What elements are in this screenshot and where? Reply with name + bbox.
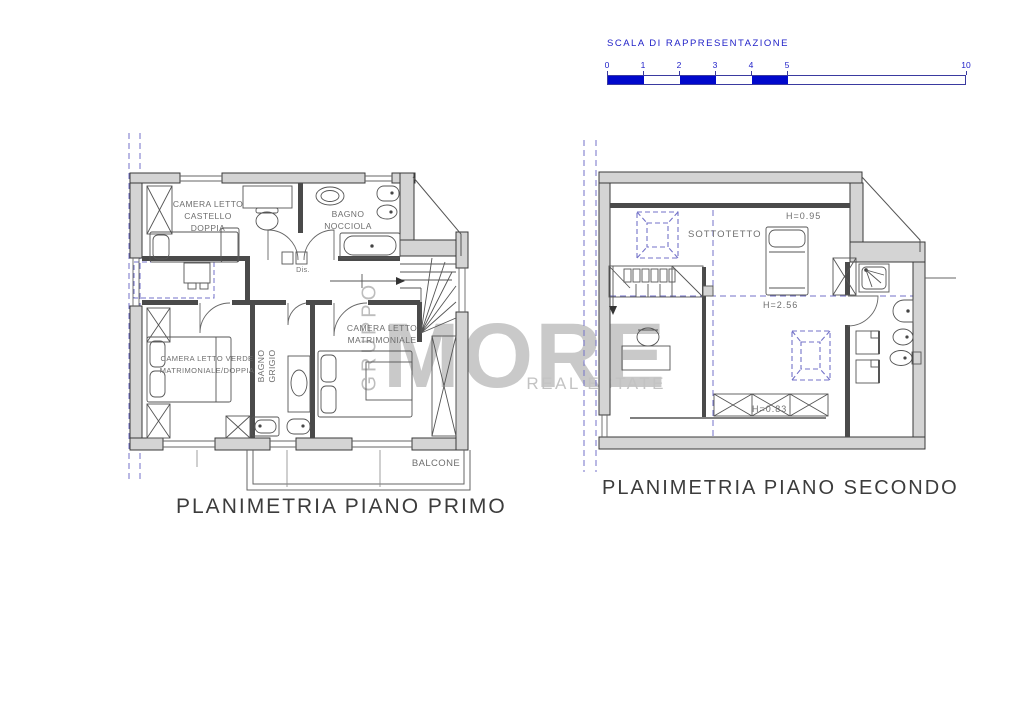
room-label-castello: CASTELLO <box>184 211 232 221</box>
room-label-grigio: BAGNO <box>256 350 266 383</box>
height-label: H=0.83 <box>752 404 787 414</box>
bathtub-icon <box>340 233 400 258</box>
sink-icon <box>316 187 344 205</box>
desk-icon <box>243 186 292 208</box>
second-floor-title: PLANIMETRIA PIANO SECONDO <box>602 477 959 500</box>
scale-tick-label: 4 <box>749 60 754 70</box>
door-swings <box>200 230 367 336</box>
bidet-icon <box>377 205 397 219</box>
scale-tick-label: 2 <box>677 60 682 70</box>
washbasin-icon <box>893 300 913 322</box>
first-floor-title: PLANIMETRIA PIANO PRIMO <box>176 495 507 519</box>
double-bed-icon <box>318 351 412 417</box>
chair-icon <box>637 328 659 346</box>
scale-bar-rule <box>607 75 966 85</box>
single-bed-icon <box>766 227 808 295</box>
scale-tick-label: 10 <box>961 60 970 70</box>
room-label-grigio: GRIGIO <box>267 349 277 382</box>
bidet-icon <box>893 329 913 345</box>
stairs-icon <box>330 258 456 333</box>
room-label-verde: MATRIMONIALE/DOPPIA <box>160 366 255 375</box>
chamfer-edge <box>862 177 920 252</box>
balcony-outline <box>197 450 470 490</box>
wardrobe-icon <box>147 186 172 234</box>
wardrobe-icon <box>833 258 856 295</box>
stairs-icon <box>609 266 713 315</box>
room-label-matrimoniale: CAMERA LETTO <box>347 323 417 333</box>
skylight-icon <box>637 212 678 258</box>
appliance-icon <box>856 331 879 354</box>
cabinet-sink-icon <box>288 356 310 412</box>
first-floor-plan: CAMERA LETTO CASTELLO DOPPIA BAGNO NOCCI… <box>110 120 490 505</box>
furniture <box>147 186 412 436</box>
room-label-matrimoniale: MATRIMONIALE <box>348 335 417 345</box>
room-label-nocciola: BAGNO <box>332 209 365 219</box>
chair-icon <box>256 208 278 230</box>
room-label-castello: CAMERA LETTO <box>173 199 243 209</box>
room-label-disimpegno: Dis. <box>296 267 310 274</box>
scale-tick-label: 0 <box>605 60 610 70</box>
room-label-sottotetto: SOTTOTETTO <box>688 229 762 240</box>
room-label-balcone: BALCONE <box>412 458 460 469</box>
scale-tick-label: 3 <box>713 60 718 70</box>
scale-tick-label: 5 <box>785 60 790 70</box>
second-floor-plan: SOTTOTETTO H=0.95 H=2.56 H=0.83 <box>568 130 960 480</box>
low-cabinet-icon <box>630 394 828 418</box>
room-label-nocciola: NOCCIOLA <box>324 221 372 231</box>
scale-bar-title: SCALA DI RAPPRESENTAZIONE <box>607 38 789 49</box>
toilet-icon <box>287 419 310 434</box>
height-label: H=2.56 <box>763 300 798 310</box>
door-swing <box>848 296 878 326</box>
appliance-icon <box>856 360 879 383</box>
wardrobe-icon <box>147 404 170 438</box>
shower-icon <box>859 264 889 292</box>
wardrobe-icon <box>432 336 456 436</box>
desk-icon <box>622 346 670 370</box>
skylight-icon <box>792 331 830 380</box>
scale-tick-label: 1 <box>641 60 646 70</box>
cabinet-icon <box>282 252 293 264</box>
toilet-icon <box>377 186 399 201</box>
wardrobe-icon <box>226 416 250 438</box>
room-label-verde: CAMERA LETTO VERDE <box>161 354 254 363</box>
dresser-icon <box>184 263 210 289</box>
bathtub-icon <box>252 417 279 436</box>
room-label-castello: DOPPIA <box>191 223 226 233</box>
section-dashed-lines <box>584 140 913 472</box>
floorplan-page: GRUPPO MORE REAL ESTATE SCALA DI RAPPRES… <box>0 0 1024 724</box>
height-label: H=0.95 <box>786 211 821 221</box>
scale-bar: SCALA DI RAPPRESENTAZIONE 0 1 2 3 4 5 10 <box>604 38 984 90</box>
